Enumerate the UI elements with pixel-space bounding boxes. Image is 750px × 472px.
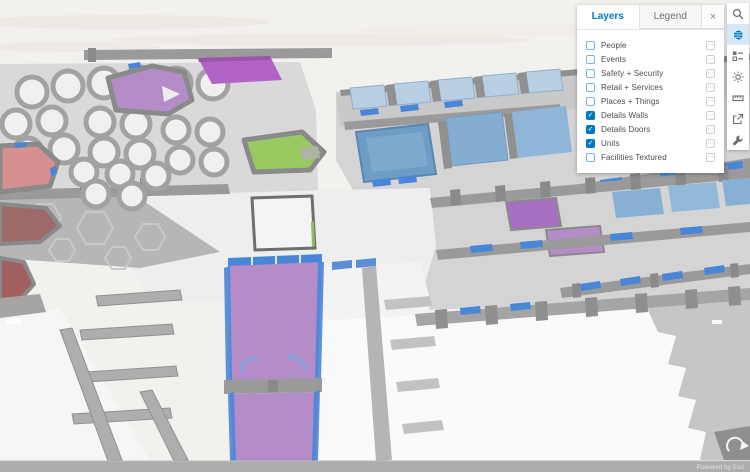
layer-row-places-things: Places + Things ⋯	[586, 94, 715, 108]
layer-row-details-doors: ✓ Details Doors ⋯	[586, 122, 715, 136]
search-icon[interactable]	[727, 3, 749, 24]
layer-options-icon[interactable]: ⋯	[706, 97, 715, 106]
layer-label: Safety + Security	[601, 69, 706, 78]
layer-row-details-walls: ✓ Details Walls ⋯	[586, 108, 715, 122]
tools-wrench-icon[interactable]	[727, 129, 749, 150]
checkbox-places-things[interactable]	[586, 97, 595, 106]
layer-options-icon[interactable]: ⋯	[706, 153, 715, 162]
checkbox-people[interactable]	[586, 41, 595, 50]
daylight-icon[interactable]	[727, 66, 749, 87]
attribution-text: Powered by Esri	[697, 464, 744, 471]
close-icon[interactable]: ×	[702, 5, 724, 29]
scene-toolbar	[727, 3, 749, 150]
layer-label: Units	[601, 139, 706, 148]
measure-icon[interactable]	[727, 87, 749, 108]
layer-options-icon[interactable]: ⋯	[706, 69, 715, 78]
layer-options-icon[interactable]: ⋯	[706, 125, 715, 134]
layer-options-icon[interactable]: ⋯	[706, 111, 715, 120]
layers-panel: Layers Legend × People ⋯ Events ⋯ Safety…	[577, 5, 724, 173]
layer-label: Details Walls	[601, 111, 706, 120]
basemap-globe-icon[interactable]	[727, 24, 749, 45]
legend-grid-icon[interactable]	[727, 45, 749, 66]
layer-row-events: Events ⋯	[586, 52, 715, 66]
layer-options-icon[interactable]: ⋯	[706, 139, 715, 148]
layer-label: Retail + Services	[601, 83, 706, 92]
layer-row-units: ✓ Units ⋯	[586, 136, 715, 150]
layer-row-people: People ⋯	[586, 38, 715, 52]
tab-legend[interactable]: Legend	[640, 5, 703, 29]
layer-row-retail-services: Retail + Services ⋯	[586, 80, 715, 94]
checkbox-events[interactable]	[586, 55, 595, 64]
checkbox-safety-security[interactable]	[586, 69, 595, 78]
checkbox-details-walls[interactable]: ✓	[586, 111, 595, 120]
layer-label: Facilities Textured	[601, 153, 706, 162]
central-purple-corridor	[224, 254, 324, 461]
layer-label: Details Doors	[601, 125, 706, 134]
layer-label: Places + Things	[601, 97, 706, 106]
tab-layers[interactable]: Layers	[577, 5, 640, 29]
checkbox-retail-services[interactable]	[586, 83, 595, 92]
checkbox-facilities-textured[interactable]	[586, 153, 595, 162]
checkbox-details-doors[interactable]: ✓	[586, 125, 595, 134]
layer-options-icon[interactable]: ⋯	[706, 83, 715, 92]
attribution-bar: Powered by Esri	[0, 461, 750, 472]
panel-tab-bar: Layers Legend ×	[577, 5, 724, 30]
checkbox-units[interactable]: ✓	[586, 139, 595, 148]
layer-options-icon[interactable]: ⋯	[706, 55, 715, 64]
layer-label: Events	[601, 55, 706, 64]
layer-row-safety-security: Safety + Security ⋯	[586, 66, 715, 80]
layer-list: People ⋯ Events ⋯ Safety + Security ⋯ Re…	[577, 30, 724, 173]
share-icon[interactable]	[727, 108, 749, 129]
layer-row-facilities-textured: Facilities Textured ⋯	[586, 150, 715, 164]
layer-label: People	[601, 41, 706, 50]
layer-options-icon[interactable]: ⋯	[706, 41, 715, 50]
